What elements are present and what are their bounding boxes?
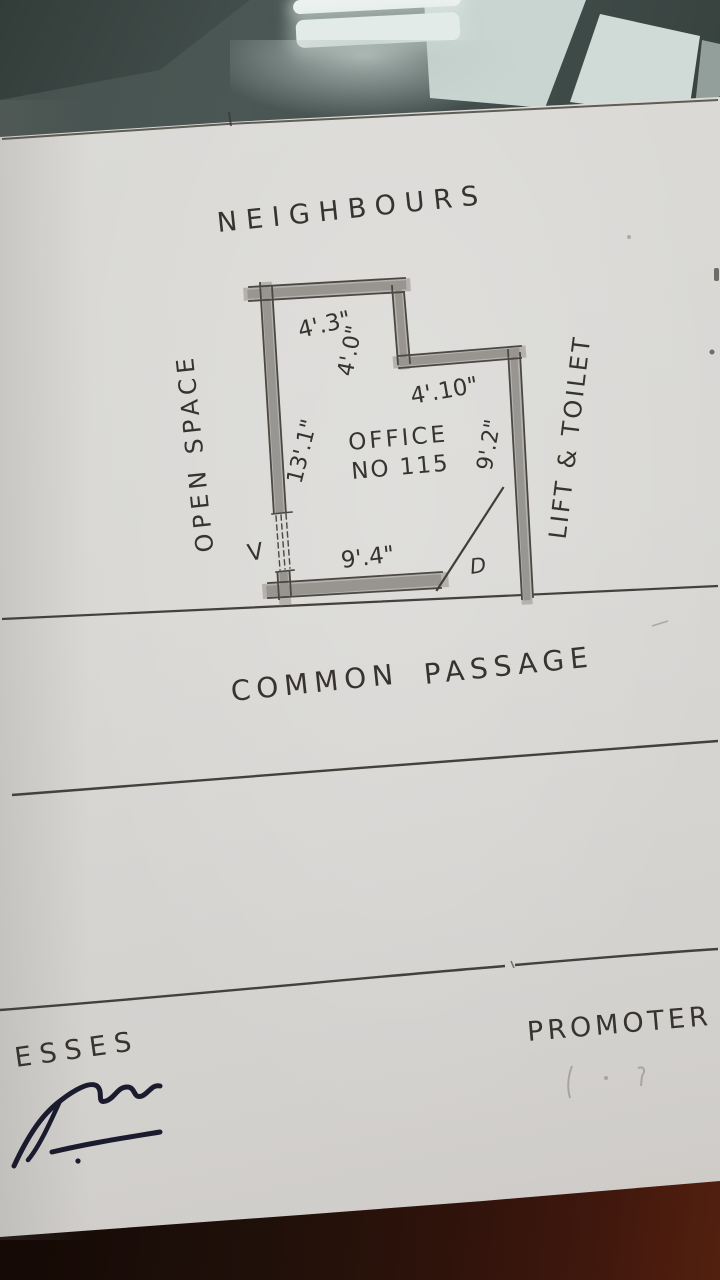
dim-left: 13'.1" (283, 417, 323, 486)
smudge (638, 1067, 644, 1086)
passage-bottom-line (12, 741, 718, 795)
dim-mid: 4'.10" (409, 372, 481, 409)
signature-dot (75, 1158, 80, 1163)
tick (511, 961, 514, 968)
speck (714, 268, 719, 281)
open-space-label: OPEN SPACE (171, 352, 220, 554)
dim-right: 9'.2" (473, 418, 507, 473)
smudge (604, 1076, 608, 1080)
door-symbol-label: D (468, 553, 487, 579)
lower-rule-line (0, 949, 718, 1010)
window-symbol-label: V (246, 539, 266, 567)
smudge (568, 1066, 572, 1098)
floor-plan-drawing: NEIGHBOURS OPEN SPACE LIFT & TOILET OFFI… (0, 0, 720, 1280)
office-number-label: NO 115 (350, 450, 450, 484)
smudge (652, 621, 668, 626)
signature (14, 1085, 160, 1166)
signature-underline (52, 1132, 160, 1152)
photo-of-floor-plan: NEIGHBOURS OPEN SPACE LIFT & TOILET OFFI… (0, 0, 720, 1280)
lift-toilet-label: LIFT & TOILET (544, 333, 597, 540)
witnesses-label-partial: ESSES (13, 1026, 142, 1074)
speck (710, 350, 715, 355)
dim-bottom: 9'.4" (340, 542, 396, 574)
neighbours-label: NEIGHBOURS (215, 180, 488, 239)
common-label: COMMON (229, 657, 400, 707)
passage-lines (0, 586, 718, 1010)
promoter-label: PROMOTER (526, 1001, 713, 1048)
signature-stroke (14, 1085, 160, 1166)
dark-specks (710, 268, 720, 355)
speck (627, 235, 631, 239)
door-swing-line (437, 488, 503, 590)
passage-label: PASSAGE (422, 640, 595, 691)
top-border-line (2, 100, 718, 139)
